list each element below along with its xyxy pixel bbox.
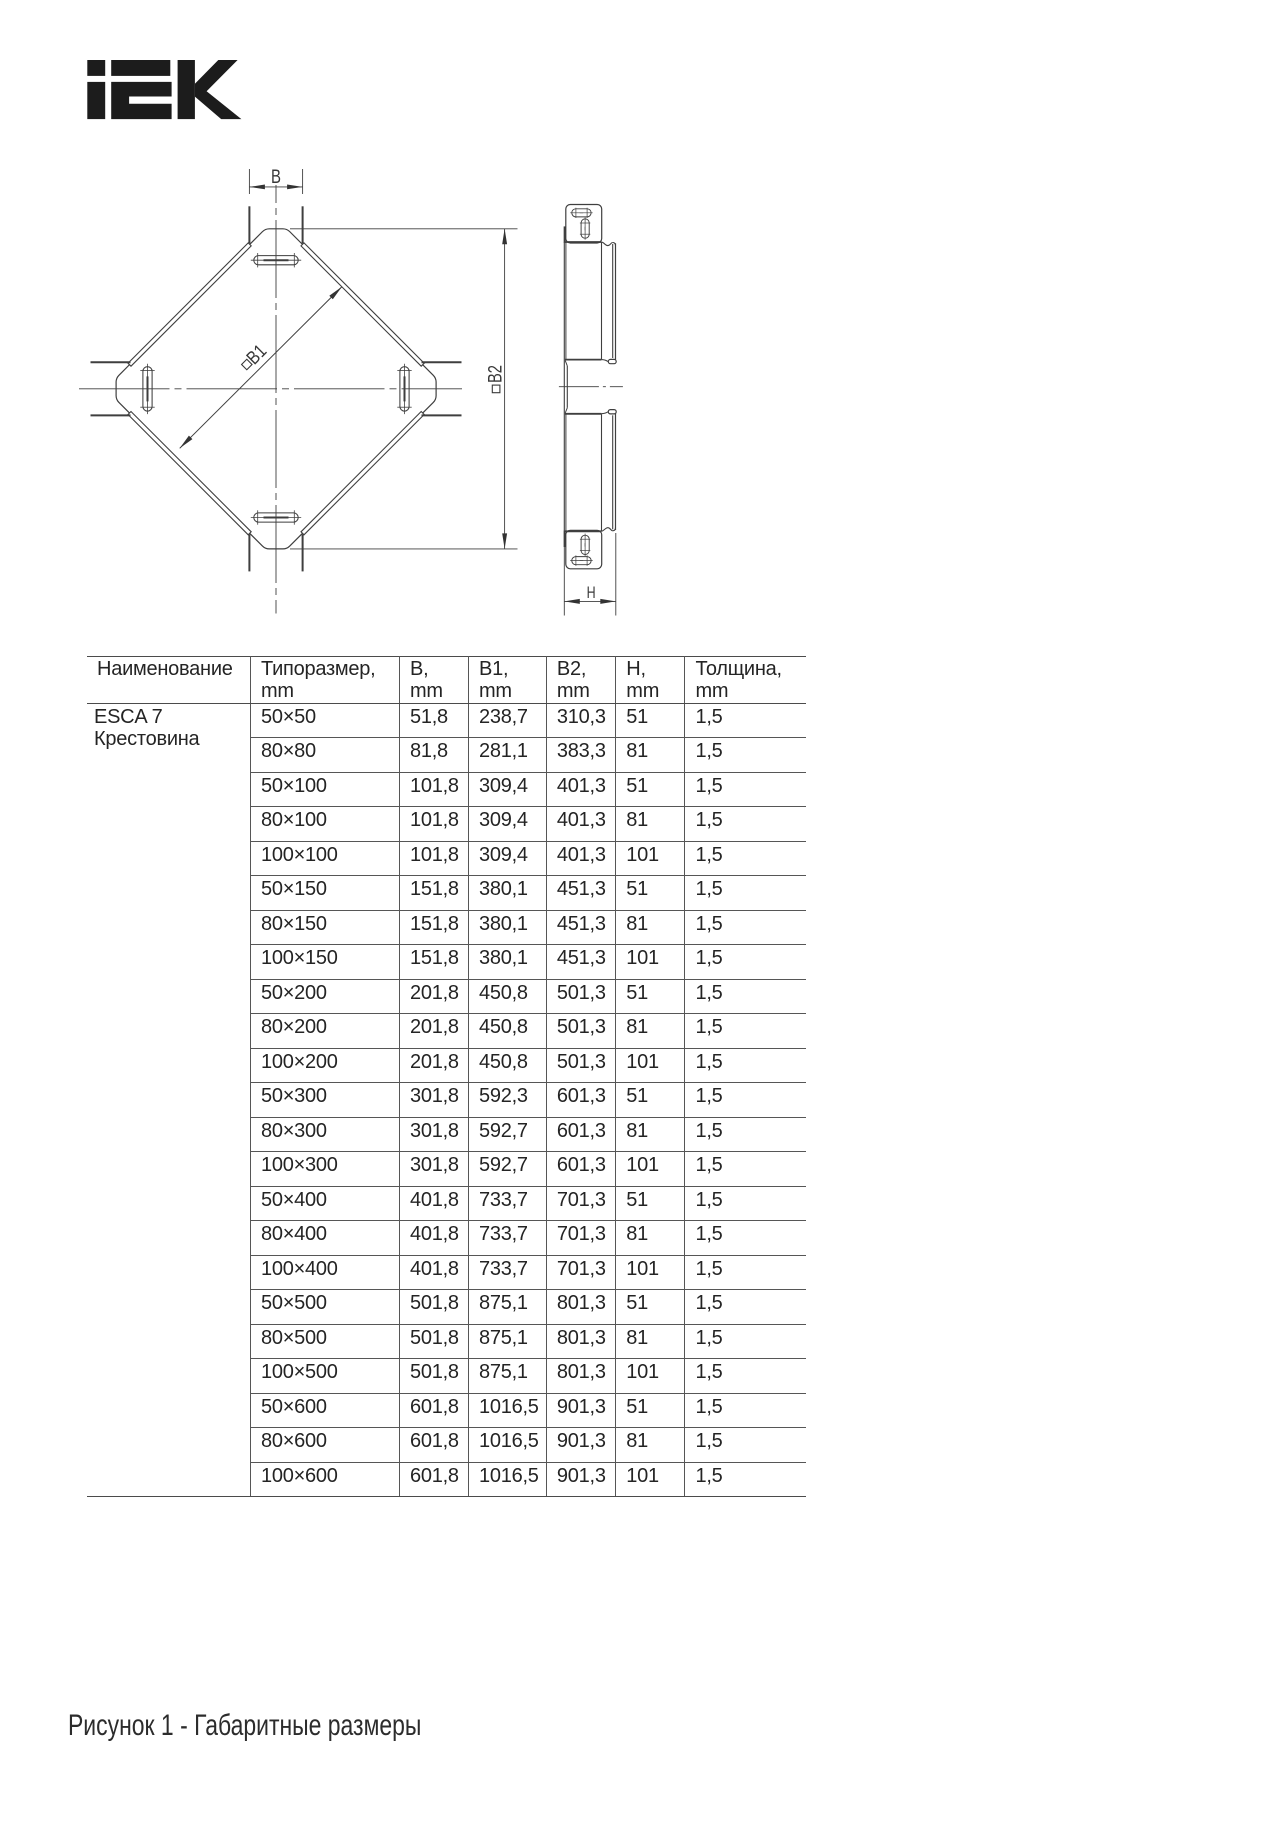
svg-text:B: B (271, 167, 281, 188)
svg-text:B1: B1 (243, 341, 271, 369)
svg-text:B2: B2 (486, 365, 507, 383)
svg-text:H: H (587, 584, 596, 602)
